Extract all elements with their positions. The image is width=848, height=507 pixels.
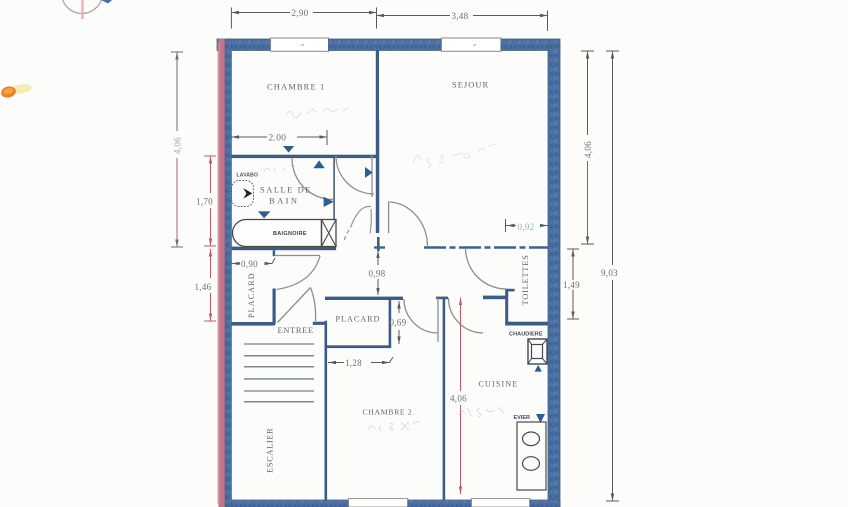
svg-text:ENTREE: ENTREE [278,325,314,335]
svg-text:EVIER: EVIER [514,415,531,421]
svg-text:CHAMBRE 2: CHAMBRE 2 [363,408,413,417]
svg-text:PLACARD: PLACARD [247,272,256,318]
svg-text:0,92: 0,92 [518,222,535,232]
svg-text:1,28: 1,28 [345,358,362,368]
svg-text:PLACARD: PLACARD [336,315,381,324]
svg-text:4,06: 4,06 [450,394,467,404]
svg-text:4,06: 4,06 [173,137,183,154]
svg-text:2.00: 2.00 [269,134,287,144]
svg-text:1,49: 1,49 [563,280,580,290]
svg-text:ESCALIER: ESCALIER [265,428,275,473]
svg-text:LAVABO: LAVABO [237,173,259,179]
svg-text:1,46: 1,46 [195,282,212,292]
svg-text:9,03: 9,03 [601,268,618,278]
svg-text:SEJOUR: SEJOUR [452,80,489,90]
svg-text:BAIGNOIRE: BAIGNOIRE [273,231,307,237]
svg-text:SALLE DE: SALLE DE [260,185,312,195]
svg-text:CHAMBRE 1: CHAMBRE 1 [267,82,325,92]
svg-text:CHAUDIERE: CHAUDIERE [509,332,543,338]
svg-text:0,90: 0,90 [241,259,258,269]
svg-text:3,48: 3,48 [452,11,469,21]
svg-text:CUISINE: CUISINE [479,380,519,389]
svg-text:4,06: 4,06 [583,141,593,158]
svg-text:1,70: 1,70 [196,197,213,207]
svg-text:BAIN: BAIN [269,196,299,206]
svg-text:0,98: 0,98 [369,269,386,279]
svg-text:TOILETTES: TOILETTES [520,255,530,306]
svg-text:2,90: 2,90 [292,8,309,18]
svg-text:0,69: 0,69 [390,318,407,328]
